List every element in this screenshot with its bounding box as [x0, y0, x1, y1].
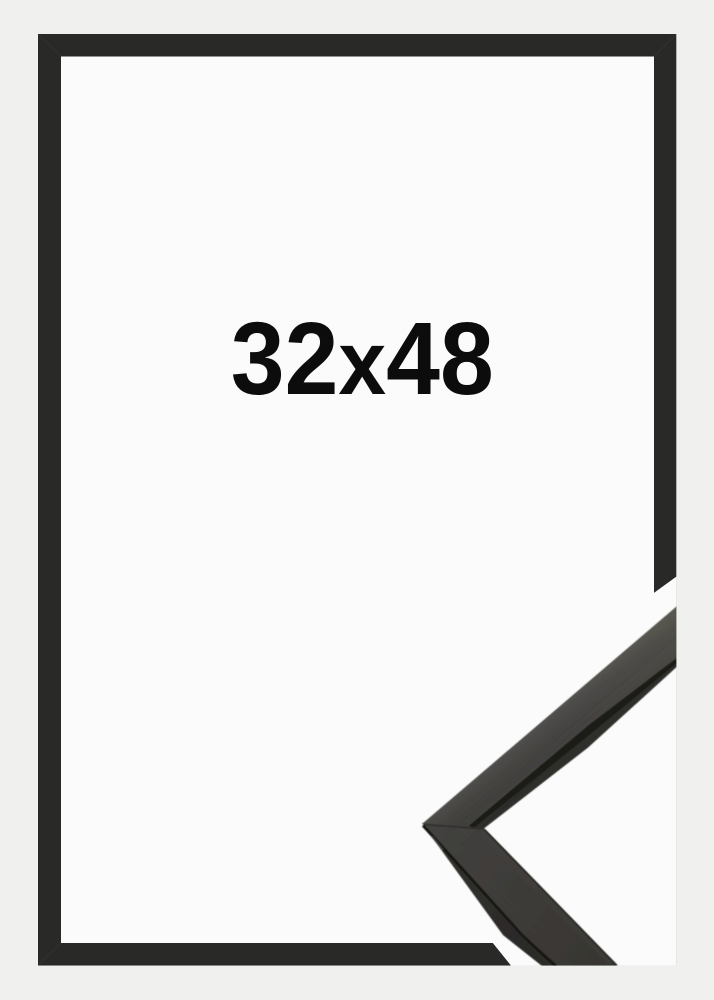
svg-text:32x48: 32x48 [231, 301, 494, 416]
